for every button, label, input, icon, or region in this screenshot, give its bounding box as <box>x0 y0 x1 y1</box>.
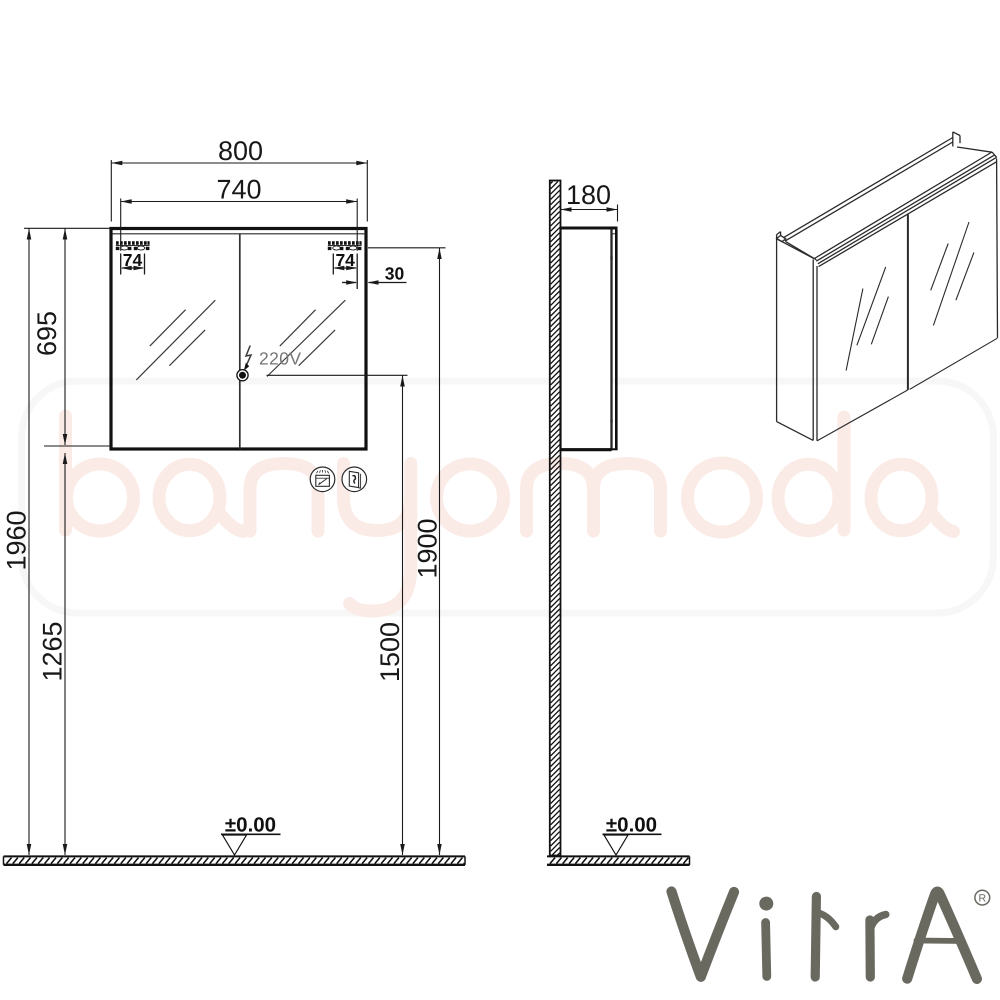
svg-text:695: 695 <box>32 311 62 356</box>
svg-text:R: R <box>979 893 987 905</box>
svg-text:±0.00: ±0.00 <box>225 814 276 837</box>
svg-text:±0.00: ±0.00 <box>606 814 657 837</box>
svg-text:74: 74 <box>123 250 143 270</box>
svg-text:1500: 1500 <box>375 622 405 682</box>
svg-text:1265: 1265 <box>38 621 68 681</box>
svg-text:1960: 1960 <box>1 510 31 570</box>
svg-text:180: 180 <box>566 180 611 210</box>
svg-text:1900: 1900 <box>412 518 442 578</box>
svg-text:74: 74 <box>335 250 355 270</box>
svg-text:30: 30 <box>385 264 405 284</box>
svg-text:800: 800 <box>218 136 263 166</box>
svg-text:220V: 220V <box>259 349 301 369</box>
svg-text:740: 740 <box>216 175 261 205</box>
